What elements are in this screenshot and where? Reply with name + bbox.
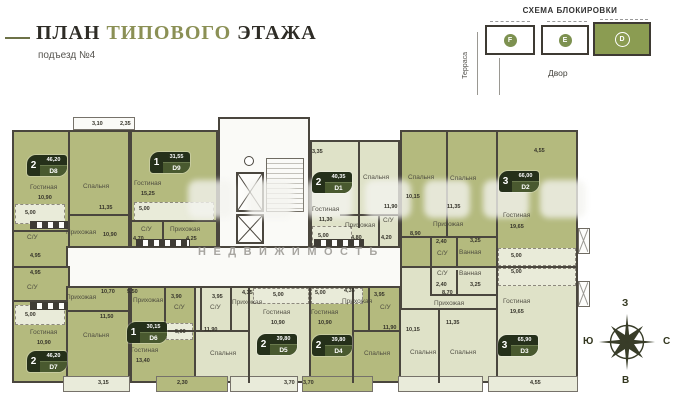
area-label: 3,25 (470, 238, 481, 244)
area-label: 5,00 (315, 290, 326, 296)
room-label: Прихожая (433, 221, 463, 228)
dimension-label: 3,15 (98, 380, 109, 386)
area-label: 4,70 (133, 236, 144, 242)
badge-unit: D8 (40, 166, 67, 176)
area-label: 4,80 (351, 235, 362, 241)
dimension-label: 3,70 (284, 380, 295, 386)
area-label: 11,30 (319, 217, 332, 223)
room-label: Прихожая (342, 298, 372, 305)
balcony (398, 376, 483, 392)
room-label: Спальня (364, 350, 390, 357)
room-label: Прихожая (133, 297, 163, 304)
balcony-box (578, 228, 590, 254)
page-subtitle: подъезд №4 (38, 50, 95, 61)
wall (130, 220, 218, 222)
scheme-dashed-line (547, 21, 587, 22)
badge-area: 30,15 (140, 322, 167, 333)
apartment-badge-d3[interactable]: 365,90D3 (498, 335, 538, 356)
area-label: 19,65 (510, 309, 524, 315)
room-label: С/У (210, 304, 221, 311)
area-label: 5,00 (25, 210, 36, 216)
area-label: 11,90 (384, 204, 397, 210)
area-label: 8,90 (410, 231, 421, 237)
area-label: 10,90 (38, 195, 52, 201)
wall (200, 286, 202, 332)
room-label: С/У (174, 304, 185, 311)
watermark-logo-blob (247, 180, 293, 218)
area-label: 5,00 (139, 206, 150, 212)
kitchen-counter (136, 239, 190, 247)
area-label: 5,00 (318, 233, 329, 239)
area-label: 10,90 (37, 340, 51, 346)
watermark-text: НЕДВИЖИМОСТЬ (198, 246, 385, 258)
garbage-chute (244, 156, 254, 166)
badge-room-count: 3 (499, 171, 512, 192)
watermark-logo-blob (424, 180, 470, 218)
badge-room-count: 1 (150, 152, 163, 173)
badge-room-count: 2 (312, 172, 325, 193)
dimension-label: 2,30 (177, 380, 188, 386)
area-label: 5,00 (511, 269, 522, 275)
badge-unit: D1 (325, 183, 352, 193)
area-label: 3,95 (212, 294, 223, 300)
badge-unit: D6 (140, 333, 167, 343)
area-label: 4,25 (186, 236, 197, 242)
wall (194, 330, 250, 332)
dimension-label: 3,10 (92, 121, 103, 127)
area-label: 2,40 (436, 239, 447, 245)
title-dash (5, 37, 30, 39)
room-label: Спальня (83, 183, 109, 190)
area-label: 3,95 (374, 292, 385, 298)
badge-room-count: 2 (27, 351, 40, 372)
scheme-title: СХЕМА БЛОКИРОВКИ (480, 6, 660, 15)
scheme-block-e[interactable]: E (541, 25, 589, 55)
room-label: Гостиная (131, 347, 158, 354)
area-label: 4,20 (381, 235, 392, 241)
room-label: С/У (383, 217, 394, 224)
dimension-label: 4,55 (530, 380, 541, 386)
title-word-type: ТИПОВОГО (106, 22, 231, 44)
wall (378, 216, 380, 246)
compass-rose (597, 312, 657, 372)
elevator-shaft (236, 214, 264, 244)
title-word-floor: ЭТАЖА (237, 22, 317, 44)
badge-room-count: 1 (127, 322, 140, 343)
area-label: 11,35 (447, 204, 460, 210)
kitchen-counter (30, 221, 68, 229)
room-label: Прихожая (66, 229, 96, 236)
compass-east: В (622, 375, 629, 386)
block-letter-d: D (615, 32, 630, 47)
room-label: С/У (437, 250, 448, 257)
badge-unit: D9 (163, 163, 190, 173)
dimension-label: 3,70 (303, 380, 314, 386)
terrace-label: Терраса (462, 52, 469, 79)
area-label: 19,65 (510, 224, 524, 230)
area-label: 4,35 (242, 290, 253, 296)
area-label: 2,40 (436, 282, 447, 288)
area-label: 10,70 (101, 289, 115, 295)
apartment-badge-d7[interactable]: 246,20D7 (27, 351, 67, 372)
room-label: Гостиная (263, 309, 290, 316)
apartment-badge-d5[interactable]: 239,80D5 (257, 334, 297, 355)
wall (12, 230, 68, 232)
wall (368, 286, 370, 332)
area-label: 10,15 (406, 327, 420, 333)
loggia (498, 268, 576, 286)
room-label: Спальня (408, 174, 434, 181)
room-label: Прихожая (232, 299, 262, 306)
balcony-box (578, 281, 590, 307)
watermark-logo-blob (540, 180, 586, 218)
balcony (63, 376, 130, 392)
area-label: 11,35 (446, 320, 459, 326)
badge-unit: D4 (325, 346, 352, 356)
yard-label: Двор (548, 68, 568, 78)
area-label: 5,00 (273, 292, 284, 298)
room-label: Спальня (83, 332, 109, 339)
area-label: 11,90 (204, 327, 217, 333)
area-label: 8,70 (442, 290, 453, 296)
area-label: 10,90 (103, 232, 117, 238)
area-label: 3,90 (171, 294, 182, 300)
scheme-dashed-line (600, 19, 648, 20)
block-letter-f: F (504, 34, 517, 47)
area-label: 10,90 (271, 320, 285, 326)
area-label: 5,00 (175, 329, 186, 335)
room-label: Спальня (450, 349, 476, 356)
badge-area: 66,00 (512, 171, 539, 182)
badge-unit: D3 (511, 346, 538, 356)
wall (68, 310, 130, 312)
page-title: ПЛАН ТИПОВОГО ЭТАЖА (36, 22, 317, 45)
kitchen-counter (30, 302, 68, 310)
area-label: 10,15 (406, 194, 420, 200)
area-label: 11,35 (99, 205, 112, 211)
loggia (498, 248, 576, 266)
wall (456, 270, 458, 296)
apartment-badge-d9[interactable]: 131,55D9 (150, 152, 190, 173)
compass-west: З (622, 298, 628, 309)
room-label: Ванная (459, 249, 481, 256)
terrace-line (499, 58, 500, 95)
room-label: Прихожая (170, 226, 200, 233)
wall (430, 294, 496, 296)
wall (456, 238, 458, 268)
dimension-label: 3,35 (312, 149, 323, 155)
room-label: Прихожая (434, 300, 464, 307)
room-label: С/У (27, 284, 38, 291)
area-label: 3,25 (470, 282, 481, 288)
dimension-label: 2,35 (120, 121, 131, 127)
badge-room-count: 2 (257, 334, 270, 355)
area-label: 4,95 (30, 253, 41, 259)
wall (68, 214, 130, 216)
room-label: Гостиная (30, 184, 57, 191)
block-letter-e: E (559, 34, 572, 47)
badge-area: 40,35 (325, 172, 352, 183)
area-label: 5,00 (511, 253, 522, 259)
room-label: С/У (27, 234, 38, 241)
scheme-block-d[interactable]: D (593, 22, 651, 56)
watermark-logo-blob (188, 180, 234, 218)
room-label: Гостиная (503, 212, 530, 219)
room-label: Спальня (410, 349, 436, 356)
room-label: С/У (141, 226, 152, 233)
title-word-plan: ПЛАН (36, 22, 100, 44)
badge-area: 39,80 (270, 334, 297, 345)
wall (430, 236, 432, 268)
badge-area: 31,55 (163, 152, 190, 163)
area-label: 13,40 (136, 358, 150, 364)
room-label: Гостиная (134, 180, 161, 187)
compass-south: Ю (583, 336, 593, 347)
area-label: 5,00 (25, 312, 36, 318)
room-label: С/У (437, 270, 448, 277)
badge-area: 46,20 (40, 351, 67, 362)
apartment-badge-d6[interactable]: 130,15D6 (127, 322, 167, 343)
room-label: Спальня (210, 350, 236, 357)
badge-unit: D2 (512, 182, 539, 192)
badge-unit: D7 (40, 362, 67, 372)
area-label: 11,90 (383, 325, 396, 331)
terrace-line (477, 32, 478, 95)
scheme-dashed-line (490, 21, 530, 22)
badge-area: 46,20 (40, 155, 67, 166)
room-label: Гостиная (311, 309, 338, 316)
dimension-label: 4,55 (534, 148, 545, 154)
room-label: Спальня (363, 174, 389, 181)
apartment-badge-d1[interactable]: 240,35D1 (312, 172, 352, 193)
area-label: 4,35 (344, 288, 355, 294)
wall (438, 310, 440, 383)
area-label: 10,90 (318, 320, 332, 326)
room-label: Гостиная (30, 329, 57, 336)
floor-plan-page: { "header":{"title_plan":"ПЛАН","title_t… (0, 0, 680, 411)
room-label: С/У (380, 304, 391, 311)
badge-area: 39,80 (325, 335, 352, 346)
room-label: Гостиная (312, 206, 339, 213)
room-label: Гостиная (503, 298, 530, 305)
badge-room-count: 2 (312, 335, 325, 356)
compass-north: С (663, 336, 670, 347)
balcony (156, 376, 228, 392)
room-label: Прихожая (345, 222, 375, 229)
wall (430, 268, 432, 296)
apartment-badge-d4[interactable]: 239,80D4 (312, 335, 352, 356)
badge-unit: D5 (270, 345, 297, 355)
area-label: 11,50 (100, 314, 113, 320)
apartment-badge-d8[interactable]: 246,20D8 (27, 155, 67, 176)
area-label: 5,50 (127, 289, 138, 295)
room-label: Спальня (450, 175, 476, 182)
area-label: 15,25 (141, 191, 155, 197)
apartment-badge-d2[interactable]: 366,00D2 (499, 171, 539, 192)
badge-room-count: 2 (27, 155, 40, 176)
apartment-d2-bath (400, 236, 498, 268)
badge-room-count: 3 (498, 335, 511, 356)
room-label: Прихожая (66, 294, 96, 301)
room-label: Ванная (459, 270, 481, 277)
wall (230, 286, 232, 332)
area-label: 4,95 (30, 270, 41, 276)
watermark-logo-blob (365, 180, 411, 218)
badge-area: 65,90 (511, 335, 538, 346)
scheme-block-f[interactable]: F (485, 25, 535, 55)
